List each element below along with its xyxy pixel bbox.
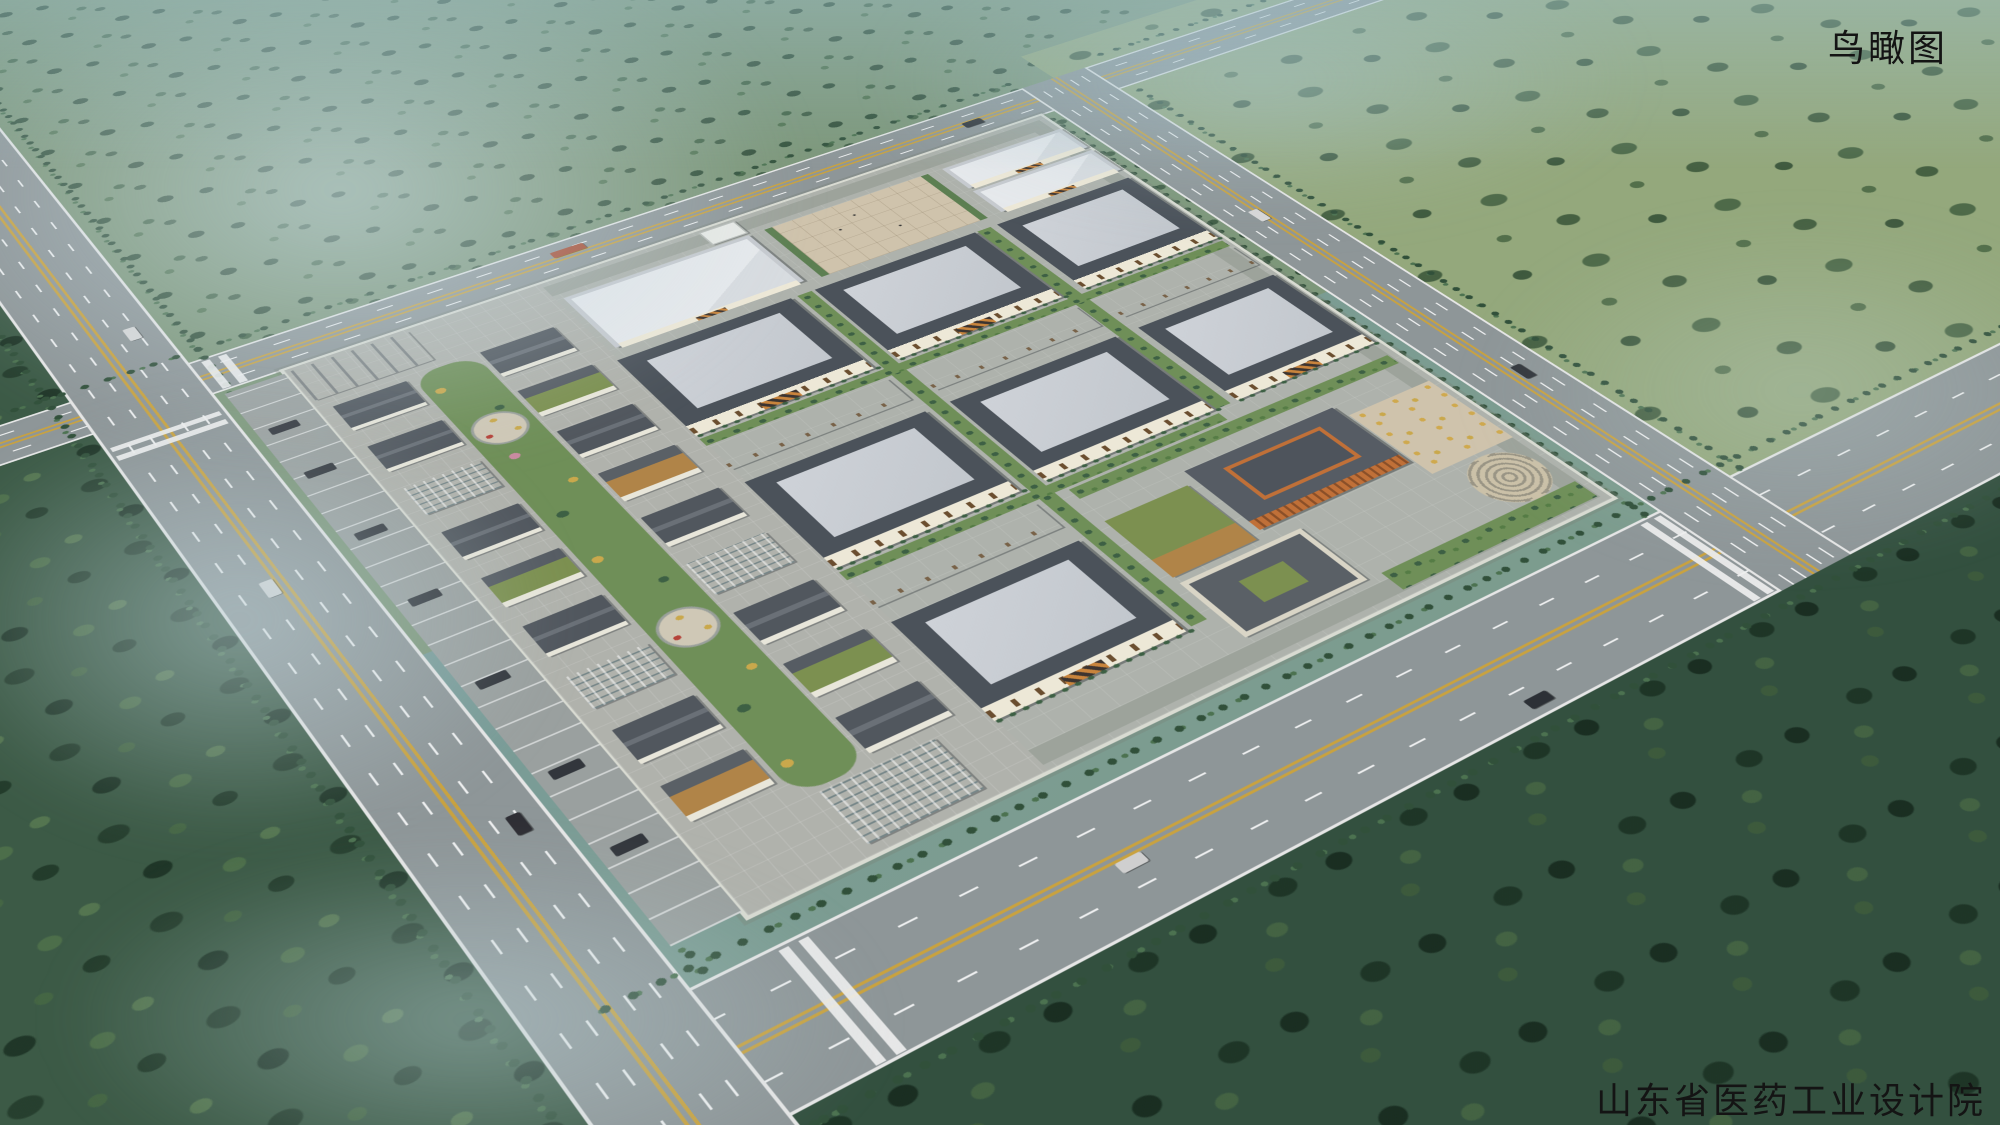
- site-plan-ground: [0, 0, 2000, 1125]
- view-title-label: 鸟瞰图: [1828, 18, 1948, 72]
- design-institute-credit: 山东省医药工业设计院: [1596, 1072, 1986, 1124]
- aerial-rendering: 鸟瞰图 山东省医药工业设计院: [0, 0, 2000, 1125]
